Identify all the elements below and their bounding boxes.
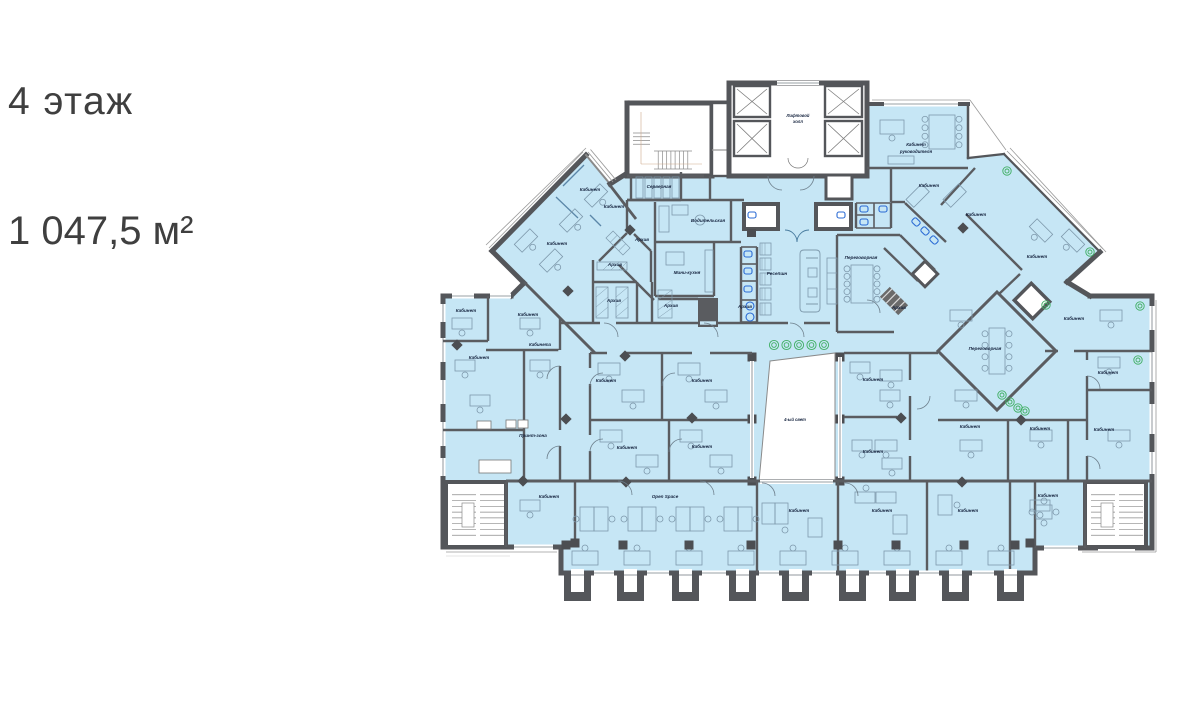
svg-text:Кабинет: Кабинет	[966, 211, 986, 217]
svg-text:Переговорная: Переговорная	[845, 255, 878, 260]
svg-text:Кабинет: Кабинет	[580, 186, 600, 192]
svg-text:Кабинета: Кабинета	[529, 342, 552, 347]
svg-text:Принт-зона: Принт-зона	[519, 433, 547, 438]
svg-text:Кабинет: Кабинет	[1027, 253, 1047, 259]
svg-text:Кабинет: Кабинет	[617, 444, 637, 450]
svg-text:Кабинет: Кабинет	[958, 507, 978, 513]
svg-text:Серверная: Серверная	[647, 184, 672, 189]
svg-text:Архив: Архив	[607, 262, 622, 267]
svg-text:Кабинет: Кабинет	[469, 354, 489, 360]
svg-text:Кабинет: Кабинет	[1038, 492, 1058, 498]
svg-text:Архив: Архив	[663, 303, 678, 308]
svg-text:Переговорная: Переговорная	[969, 346, 1002, 351]
svg-text:1 047,5 м²: 1 047,5 м²	[8, 209, 193, 253]
svg-text:Кабинет: Кабинет	[1094, 426, 1114, 432]
svg-text:Кабинет: Кабинет	[1030, 425, 1050, 431]
svg-text:Кабинет: Кабинет	[863, 376, 883, 382]
svg-text:Кабинет: Кабинет	[547, 240, 567, 246]
svg-text:4-ый свет: 4-ый свет	[783, 417, 806, 422]
svg-text:Лифтовой: Лифтовой	[786, 113, 810, 118]
svg-text:Кабинет: Кабинет	[872, 507, 892, 513]
svg-text:Кабинет: Кабинет	[863, 448, 883, 454]
svg-text:Архив: Архив	[737, 304, 752, 309]
svg-text:Кабинет: Кабинет	[604, 203, 624, 209]
svg-text:Кабинет: Кабинет	[596, 377, 616, 383]
svg-text:Архив: Архив	[634, 237, 649, 242]
svg-text:4 этаж: 4 этаж	[8, 80, 134, 123]
svg-text:Архив: Архив	[606, 298, 621, 303]
svg-text:Кабинет: Кабинет	[456, 307, 476, 313]
svg-text:Кабинет: Кабинет	[692, 443, 712, 449]
svg-text:Кабинет: Кабинет	[1098, 369, 1118, 375]
svg-text:Кабинет: Кабинет	[1064, 315, 1084, 321]
svg-text:Архив: Архив	[891, 305, 906, 310]
svg-text:Кабинет: Кабинет	[789, 507, 809, 513]
svg-text:Кабинет: Кабинет	[919, 182, 939, 188]
svg-text:Мини-кухня: Мини-кухня	[674, 270, 701, 275]
svg-text:Кабинет: Кабинет	[518, 311, 538, 317]
svg-text:руководителя: руководителя	[899, 149, 933, 154]
svg-text:Кабинет: Кабинет	[960, 423, 980, 429]
svg-text:Кабинет: Кабинет	[692, 377, 712, 383]
svg-text:холл: холл	[792, 119, 803, 124]
svg-text:Ресепшн: Ресепшн	[767, 271, 788, 276]
svg-text:Кабинет: Кабинет	[539, 493, 559, 499]
svg-text:Водительская: Водительская	[691, 218, 725, 223]
svg-text:Open Space: Open Space	[652, 494, 679, 499]
svg-text:Кабинет: Кабинет	[906, 142, 926, 147]
